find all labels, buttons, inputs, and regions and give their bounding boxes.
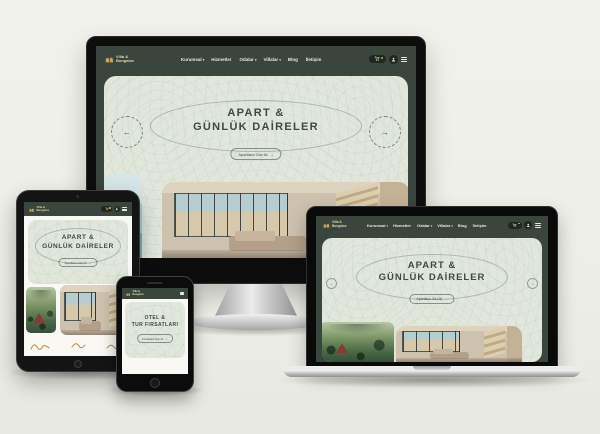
chevron-down-icon: ▾ <box>279 58 281 62</box>
hero-section: OTEL & TUR FIRSATLARI Fırsatlara Göz At→ <box>125 302 185 358</box>
nav-item-iletisim[interactable]: İletişim <box>306 57 323 62</box>
art-detail <box>336 343 348 353</box>
navbar: Villa & Bungalov <box>24 202 132 216</box>
nav-label: Blog <box>458 223 467 228</box>
nav-label: Hizmetler <box>211 57 231 62</box>
nav-label: Odalar <box>417 223 430 228</box>
nav-label: Kurumsal <box>367 223 385 228</box>
hamburger-icon <box>122 207 127 208</box>
cart-icon <box>105 207 109 211</box>
main-menu: Kurumsal▾ Hizmetler Odalar▾ Villalar▾ Bl… <box>181 57 323 62</box>
cart-icon <box>374 56 380 62</box>
nav-item-iletisim[interactable]: İletişim <box>473 223 488 228</box>
hero-title-line2: GÜNLÜK DAİRELER <box>104 120 408 134</box>
cart-badge <box>518 223 520 225</box>
nav-item-villalar[interactable]: Villalar▾ <box>437 223 453 228</box>
carousel-slide-interior[interactable] <box>396 326 522 362</box>
brand-logo[interactable]: Villa & Bungalov <box>323 221 347 228</box>
monitor-base <box>188 314 324 330</box>
hamburger-icon <box>535 225 541 226</box>
hamburger-icon <box>401 57 407 58</box>
cart-icon <box>512 223 517 228</box>
hero-title: APART & GÜNLÜK DAİRELER <box>28 234 128 251</box>
villa-logo-icon <box>29 207 35 212</box>
art-detail <box>26 287 56 333</box>
villa-logo-icon <box>126 292 131 296</box>
nav-label: Villalar <box>264 57 279 62</box>
content-section <box>122 358 188 374</box>
arrow-right-icon: → <box>89 261 92 265</box>
nav-item-hizmetler[interactable]: Hizmetler <box>211 57 232 62</box>
hero-cta-button[interactable]: Fırsatlara Göz At→ <box>137 334 173 343</box>
hero-cta-button[interactable]: Apartlara Göz At→ <box>409 294 454 304</box>
hero-cta-button[interactable]: Apartlara Göz At→ <box>58 258 97 267</box>
cart-button[interactable] <box>369 55 386 63</box>
hero-title-line1: APART & <box>322 260 542 272</box>
brand-line2: Bungalov <box>332 225 347 229</box>
art-detail <box>396 358 522 362</box>
hero-title: APART & GÜNLÜK DAİRELER <box>322 260 542 284</box>
art-detail <box>322 322 394 362</box>
navbar: Villa & Bungalov <box>122 288 188 299</box>
nav-label: Blog <box>288 57 298 62</box>
user-button[interactable] <box>114 206 120 212</box>
nav-label: İletişim <box>473 223 487 228</box>
chevron-down-icon: ▾ <box>387 224 389 228</box>
nav-item-kurumsal[interactable]: Kurumsal▾ <box>367 223 388 228</box>
laptop-notch <box>413 366 451 370</box>
hamburger-button[interactable] <box>122 207 127 211</box>
nav-label: Odalar <box>240 57 254 62</box>
chevron-down-icon: ▾ <box>255 58 257 62</box>
nav-item-blog[interactable]: Blog <box>288 57 299 62</box>
hero-title-line2: GÜNLÜK DAİRELER <box>28 243 128 252</box>
laptop-site: Villa & Bungalov Kurumsal▾ Hizmetler Oda… <box>316 216 548 362</box>
hamburger-icon <box>401 59 407 60</box>
tablet-home-button[interactable] <box>74 360 82 368</box>
nav-label: Kurumsal <box>181 57 202 62</box>
hero-title-line1: OTEL & <box>125 315 185 322</box>
hamburger-icon <box>180 294 185 295</box>
hero-title-line2: GÜNLÜK DAİRELER <box>322 272 542 284</box>
art-detail <box>33 313 45 323</box>
cart-button[interactable] <box>101 206 112 212</box>
brand-name: Villa & Bungalov <box>37 206 50 212</box>
arrow-right-icon: → <box>444 297 448 301</box>
hamburger-button[interactable] <box>180 292 185 296</box>
villa-logo-icon <box>323 222 330 228</box>
script-logo-2-icon[interactable] <box>70 341 86 351</box>
hero-title-line1: APART & <box>104 106 408 120</box>
cta-label: Fırsatlara Göz At <box>142 337 163 341</box>
photo-carousel <box>322 320 542 362</box>
cta-label: Apartlara Göz At <box>238 152 267 157</box>
art-detail <box>79 321 101 331</box>
navbar-actions <box>101 206 127 212</box>
art-detail <box>229 236 306 251</box>
user-icon <box>391 57 396 62</box>
cart-badge <box>109 207 111 209</box>
hero-section: ← → APART & GÜNLÜK DAİRELER Apartlara Gö… <box>322 238 542 362</box>
nav-item-villalar[interactable]: Villalar▾ <box>264 57 281 62</box>
nav-label: Hizmetler <box>393 223 411 228</box>
villa-logo-icon <box>105 55 114 63</box>
script-logo-1-icon[interactable] <box>30 341 50 351</box>
art-detail <box>484 326 505 358</box>
nav-item-blog[interactable]: Blog <box>458 223 468 228</box>
hamburger-button[interactable] <box>401 57 407 62</box>
brand-logo[interactable]: Villa & Bungalov <box>105 55 134 64</box>
cta-label: Apartlara Göz At <box>64 261 86 265</box>
user-icon <box>115 207 119 211</box>
brand-name: Villa & Bungalov <box>133 291 144 297</box>
nav-item-hizmetler[interactable]: Hizmetler <box>393 223 412 228</box>
nav-label: İletişim <box>306 57 322 62</box>
phone-site: Villa & Bungalov OTEL & TUR FIRSATLARI F… <box>122 288 188 374</box>
art-detail <box>174 193 288 237</box>
cart-badge <box>381 57 383 59</box>
hamburger-button[interactable] <box>535 223 541 228</box>
main-menu: Kurumsal▾ Hizmetler Odalar▾ Villalar▾ Bl… <box>367 223 487 228</box>
brand-name: Villa & Bungalov <box>332 221 347 228</box>
nav-item-kurumsal[interactable]: Kurumsal▾ <box>181 57 204 62</box>
hamburger-icon <box>122 210 127 211</box>
hamburger-icon <box>535 227 541 228</box>
chevron-down-icon: ▾ <box>431 224 433 228</box>
mockup-stage: Villa & Bungalov Kurumsal▾ Hizmetler Oda… <box>0 0 600 434</box>
brand-name: Villa & Bungalov <box>116 55 134 64</box>
chevron-down-icon: ▾ <box>451 224 453 228</box>
brand-line2: Bungalov <box>116 59 134 63</box>
tablet-camera <box>76 195 79 198</box>
nav-item-odalar[interactable]: Odalar▾ <box>417 223 432 228</box>
user-button[interactable] <box>389 55 398 64</box>
phone-home-button[interactable] <box>150 378 160 388</box>
hamburger-icon <box>535 223 541 224</box>
hero-title: OTEL & TUR FIRSATLARI <box>125 315 185 329</box>
nav-label: Villalar <box>437 223 450 228</box>
gallery-image-landscape[interactable] <box>26 287 56 333</box>
arrow-right-icon: → <box>165 337 168 341</box>
hero-section: APART & GÜNLÜK DAİRELER Apartlara Göz At… <box>28 220 128 284</box>
user-icon <box>526 223 531 228</box>
brand-logo[interactable]: Villa & Bungalov <box>29 206 49 212</box>
navbar-actions <box>369 55 407 64</box>
hero-title-line2: TUR FIRSATLARI <box>125 322 185 329</box>
hero-cta-button[interactable]: Apartlara Göz At→ <box>230 148 281 160</box>
chevron-down-icon: ▾ <box>203 58 205 62</box>
brand-line2: Bungalov <box>37 209 50 212</box>
cta-label: Apartlara Göz At <box>416 297 442 301</box>
hamburger-icon <box>401 61 407 62</box>
nav-item-odalar[interactable]: Odalar▾ <box>240 57 257 62</box>
navbar: Villa & Bungalov Kurumsal▾ Hizmetler Oda… <box>96 46 416 72</box>
arrow-right-icon: → <box>270 152 274 157</box>
cart-button[interactable] <box>508 222 522 229</box>
user-button[interactable] <box>524 221 532 229</box>
navbar-actions <box>508 221 541 229</box>
brand-line2: Bungalov <box>133 294 144 297</box>
brand-logo[interactable]: Villa & Bungalov <box>126 291 144 297</box>
carousel-slide-landscape[interactable] <box>322 322 394 362</box>
hero-title-line1: APART & <box>28 234 128 243</box>
art-detail <box>507 326 522 362</box>
hero-title: APART & GÜNLÜK DAİRELER <box>104 106 408 134</box>
phone-speaker <box>147 282 163 284</box>
navbar: Villa & Bungalov Kurumsal▾ Hizmetler Oda… <box>316 216 548 234</box>
